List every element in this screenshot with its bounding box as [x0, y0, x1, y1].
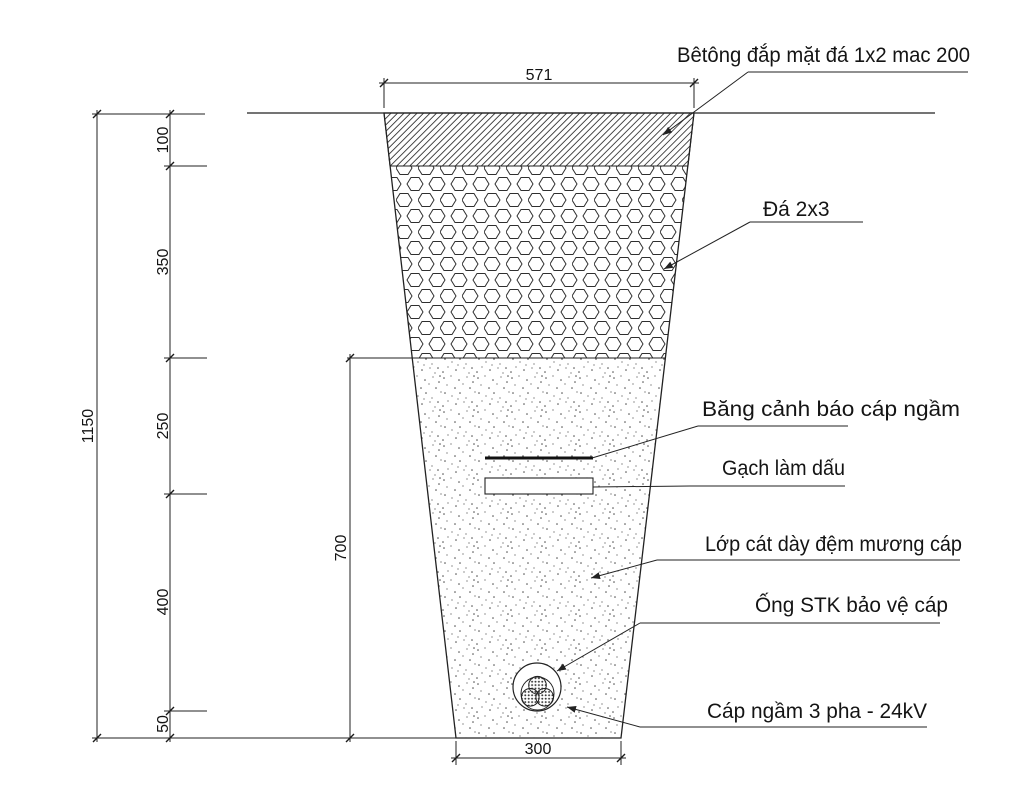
dim-total-depth-value: 1150	[80, 409, 97, 444]
label-concrete: Bêtông đắp mặt đá 1x2 mac 200	[677, 44, 970, 67]
stone-layer	[390, 166, 688, 358]
dim-bedding-value: 50	[155, 715, 172, 733]
label-cable: Cáp ngầm 3 pha - 24kV	[707, 700, 927, 723]
label-pipe: Ống STK bảo vệ cáp	[755, 593, 948, 617]
trench-cross-section-drawing: 571 1150 100 350 250 400 50 700 300 Bêtô…	[0, 0, 1024, 805]
label-warning-tape: Băng cảnh báo cáp ngầm	[702, 398, 960, 421]
dim-tape-depth-value: 250	[155, 413, 172, 440]
drawing-canvas: 571 1150 100 350 250 400 50 700 300 Bêtô…	[0, 0, 1024, 805]
dim-bottom-width: 300	[451, 741, 626, 765]
marker-brick	[485, 478, 593, 494]
dim-stone-layer-value: 350	[155, 249, 172, 276]
dim-top-width-value: 571	[526, 67, 553, 84]
dim-trench-depth-value: 700	[333, 535, 350, 562]
dim-cable-depth-value: 400	[155, 589, 172, 616]
callout-concrete: Bêtông đắp mặt đá 1x2 mac 200	[663, 44, 970, 135]
dim-bottom-width-value: 300	[525, 741, 552, 758]
callout-stone: Đá 2x3	[664, 198, 863, 269]
callout-sand: Lớp cát dày đệm mương cáp	[591, 533, 962, 578]
dim-layer-chain: 100 350 250 400 50	[155, 110, 207, 742]
dim-top-width: 571	[379, 67, 699, 108]
label-sand: Lớp cát dày đệm mương cáp	[705, 533, 962, 556]
label-marker-brick: Gạch làm dấu	[722, 457, 845, 480]
label-stone: Đá 2x3	[763, 198, 830, 221]
concrete-layer	[384, 113, 694, 166]
dim-concrete-layer-value: 100	[155, 127, 172, 154]
dim-trench-depth: 700	[333, 354, 354, 742]
leader-concrete	[663, 72, 748, 135]
